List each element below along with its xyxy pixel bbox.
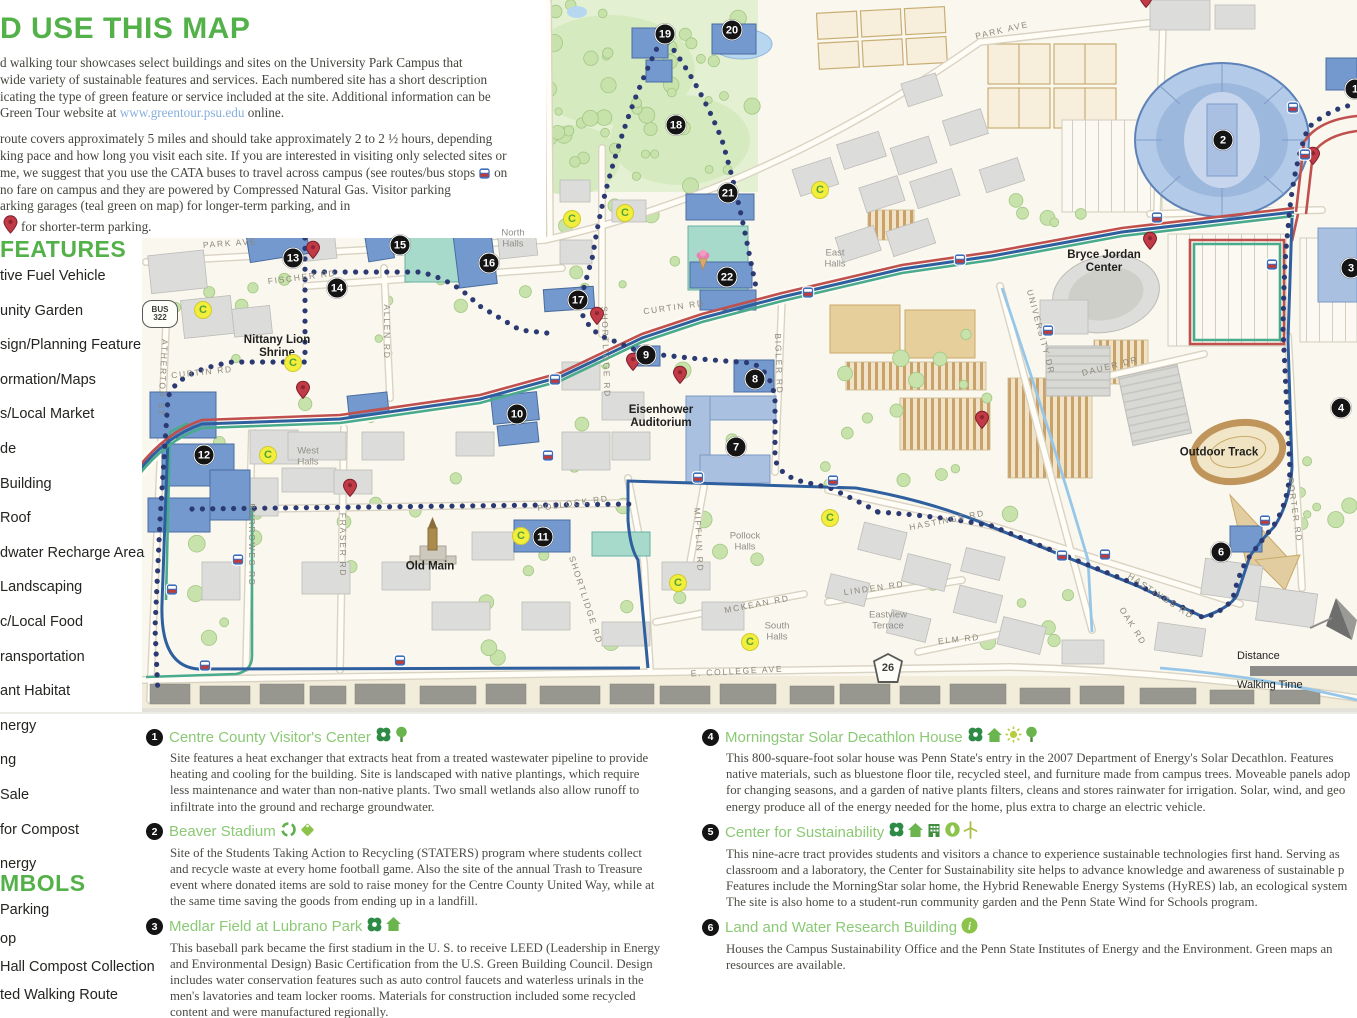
tree-icon xyxy=(1024,726,1039,748)
map-marker-11[interactable]: 11 xyxy=(533,527,554,548)
house-icon xyxy=(986,727,1003,748)
site-title: Beaver Stadium xyxy=(169,823,276,840)
site-description-line: includes water conservation features suc… xyxy=(170,972,694,988)
tree-icon xyxy=(394,726,409,748)
pinwheel-icon xyxy=(366,916,383,938)
feature-legend-item: ng xyxy=(0,752,16,768)
feature-legend-item: sign/Planning Feature xyxy=(0,337,141,353)
map-marker-21[interactable]: 21 xyxy=(718,183,739,204)
feature-legend-item: unity Garden xyxy=(0,303,83,319)
map-marker-18[interactable]: 18 xyxy=(666,115,687,136)
site-description-5: 5Center for SustainabilityThis nine-acre… xyxy=(702,821,1357,911)
site-description-line: men's lavatories and team locker rooms. … xyxy=(170,988,694,1004)
turbine-icon xyxy=(963,821,978,844)
intro-line: d walking tour showcases select building… xyxy=(0,55,545,72)
site-description-line: This nine-acre tract provides students a… xyxy=(726,846,1357,862)
green-tour-link[interactable]: www.greentour.psu.edu xyxy=(120,105,245,120)
site-title-row: 4Morningstar Solar Decathlon House xyxy=(702,726,1357,748)
site-description-line: and Environmental Design) Basic Certific… xyxy=(170,956,694,972)
site-description-line: This 800-square-foot solar house was Pen… xyxy=(726,750,1357,766)
map-marker-10[interactable]: 10 xyxy=(507,404,528,425)
site-title-row: 2Beaver Stadium xyxy=(146,821,694,843)
site-title: Centre County Visitor's Center xyxy=(169,729,371,746)
house-icon xyxy=(907,822,924,843)
feature-legend-item: ransportation xyxy=(0,649,85,665)
map-marker-6[interactable]: 6 xyxy=(1211,542,1232,563)
features-heading: FEATURES xyxy=(0,236,126,263)
map-marker-19[interactable]: 19 xyxy=(655,24,676,45)
how-to-use-body: d walking tour showcases select building… xyxy=(0,55,545,236)
intro-line: arking garages (teal green on map) for l… xyxy=(0,198,545,215)
site-description-line: event where donated items are sold to ra… xyxy=(170,877,694,893)
intro-line: icating the type of green feature or ser… xyxy=(0,89,545,106)
site-descriptions-panel: 1Centre County Visitor's CenterSite feat… xyxy=(0,712,1357,1018)
parking-pin-icon xyxy=(0,219,21,234)
symbol-legend-item: Hall Compost Collection xyxy=(0,959,155,975)
site-description-line: classroom and a laboratory, the Center f… xyxy=(726,862,1357,878)
feature-legend-item: c/Local Food xyxy=(0,614,83,630)
intro-line: no fare on campus and they are powered b… xyxy=(0,182,545,199)
sun-icon xyxy=(1005,726,1022,748)
site-title: Medlar Field at Lubrano Park xyxy=(169,918,362,935)
site-title-row: 3Medlar Field at Lubrano Park xyxy=(146,916,694,938)
intro-line: route covers approximately 5 miles and s… xyxy=(0,131,545,148)
site-description-line: Site features a heat exchanger that extr… xyxy=(170,750,694,766)
site-title-row: 1Centre County Visitor's Center xyxy=(146,726,694,748)
building-icon xyxy=(926,821,942,843)
intro-bus-line: me, we suggest that you use the CATA bus… xyxy=(0,165,545,182)
map-marker-17[interactable]: 17 xyxy=(568,290,589,311)
pinwheel-icon xyxy=(888,821,905,843)
site-description-line: native materials, such as bluestone floo… xyxy=(726,766,1357,782)
site-description-line: Houses the Campus Sustainability Office … xyxy=(726,941,1357,957)
recycle-icon xyxy=(280,821,297,843)
feature-legend-item: for Compost xyxy=(0,822,79,838)
site-descriptions-right-column: 4Morningstar Solar Decathlon HouseThis 8… xyxy=(702,726,1357,979)
feature-legend-item: Roof xyxy=(0,510,31,526)
site-description-line: heating and cooling for the building. Si… xyxy=(170,766,694,782)
site-description-line: for changing seasons, and a garden of na… xyxy=(726,782,1357,798)
symbol-legend-item: op xyxy=(0,931,16,947)
site-feature-icons xyxy=(366,916,402,938)
feature-legend-item: Landscaping xyxy=(0,579,82,595)
site-description-line: content and were manufactured regionally… xyxy=(170,1004,694,1018)
map-marker-2[interactable]: 2 xyxy=(1213,130,1234,151)
feature-legend-item: ant Habitat xyxy=(0,683,70,699)
intro-pin-line: for shorter-term parking. xyxy=(0,215,545,236)
symbols-heading: MBOLS xyxy=(0,870,86,897)
how-to-use-heading: D USE THIS MAP xyxy=(0,12,545,46)
site-descriptions-left-column: 1Centre County Visitor's CenterSite feat… xyxy=(146,726,694,1018)
site-description-line: resources are available. xyxy=(726,957,1357,973)
site-title: Center for Sustainability xyxy=(725,824,884,841)
info-icon: i xyxy=(961,917,978,939)
site-feature-icons xyxy=(967,726,1039,748)
site-description-line: Site of the Students Taking Action to Re… xyxy=(170,845,694,861)
map-marker-13[interactable]: 13 xyxy=(283,248,304,269)
site-title-row: 6Land and Water Research Buildingi xyxy=(702,917,1357,939)
green-tour-map-poster: BUS 322 26 Distance Walking Time PARK AV… xyxy=(0,0,1357,1018)
site-title: Land and Water Research Building xyxy=(725,919,957,936)
map-marker-7[interactable]: 7 xyxy=(726,437,747,458)
feature-legend-item: dwater Recharge Area xyxy=(0,545,144,561)
site-description-line: less maintenance and water than non-nati… xyxy=(170,782,694,798)
map-marker-4[interactable]: 4 xyxy=(1331,398,1352,419)
feature-legend-item: tive Fuel Vehicle xyxy=(0,268,106,284)
leaf-icon xyxy=(944,821,961,843)
site-description-line: and recycle waste at every home football… xyxy=(170,861,694,877)
feature-legend-item: Building xyxy=(0,476,52,492)
tag-icon xyxy=(299,821,316,843)
how-to-use-panel: D USE THIS MAP d walking tour showcases … xyxy=(0,12,545,236)
pinwheel-icon xyxy=(967,726,984,748)
site-feature-icons xyxy=(375,726,409,748)
site-description-line: Features include the MorningStar solar h… xyxy=(726,878,1357,894)
site-description-3: 3Medlar Field at Lubrano ParkThis baseba… xyxy=(146,916,694,1018)
site-description-6: 6Land and Water Research BuildingiHouses… xyxy=(702,917,1357,973)
site-description-2: 2Beaver StadiumSite of the Students Taki… xyxy=(146,821,694,910)
map-marker-12[interactable]: 12 xyxy=(194,445,215,466)
symbol-legend-item: Parking xyxy=(0,902,49,918)
site-description-4: 4Morningstar Solar Decathlon HouseThis 8… xyxy=(702,726,1357,815)
feature-legend-item: s/Local Market xyxy=(0,406,94,422)
map-marker-22[interactable]: 22 xyxy=(717,267,738,288)
map-marker-16[interactable]: 16 xyxy=(479,253,500,274)
site-number-badge: 6 xyxy=(702,919,719,936)
house-icon xyxy=(385,916,402,937)
site-title: Morningstar Solar Decathlon House xyxy=(725,729,963,746)
site-feature-icons xyxy=(280,821,316,843)
site-description-1: 1Centre County Visitor's CenterSite feat… xyxy=(146,726,694,815)
map-marker-20[interactable]: 20 xyxy=(722,20,743,41)
feature-legend-item: de xyxy=(0,441,16,457)
symbol-legend-item: ted Walking Route xyxy=(0,987,118,1003)
intro-line: king pace and how long you visit each si… xyxy=(0,148,545,165)
site-description-line: The site is also home to a student-run c… xyxy=(726,894,1357,910)
site-description-line: infiltrate into the ground and recharge … xyxy=(170,799,694,815)
map-marker-15[interactable]: 15 xyxy=(390,235,411,256)
map-marker-9[interactable]: 9 xyxy=(636,345,657,366)
intro-line: wide variety of sustainable features and… xyxy=(0,72,545,89)
site-description-line: This baseball park became the first stad… xyxy=(170,940,694,956)
map-marker-3[interactable]: 3 xyxy=(1341,258,1357,279)
site-description-line: energy produce all of the energy needed … xyxy=(726,799,1357,815)
map-marker-8[interactable]: 8 xyxy=(745,369,766,390)
site-feature-icons xyxy=(888,821,978,844)
feature-legend-item: nergy xyxy=(0,718,36,734)
feature-legend-item: Sale xyxy=(0,787,29,803)
site-number-badge: 5 xyxy=(702,824,719,841)
bus-stop-icon xyxy=(475,165,494,180)
site-number-badge: 4 xyxy=(702,729,719,746)
site-feature-icons: i xyxy=(961,917,978,939)
map-marker-14[interactable]: 14 xyxy=(327,278,348,299)
pinwheel-icon xyxy=(375,726,392,748)
feature-legend-item: ormation/Maps xyxy=(0,372,96,388)
site-description-line: the same time saving the goods from endi… xyxy=(170,893,694,909)
intro-link-line: Green Tour website at www.greentour.psu.… xyxy=(0,105,545,122)
site-title-row: 5Center for Sustainability xyxy=(702,821,1357,844)
